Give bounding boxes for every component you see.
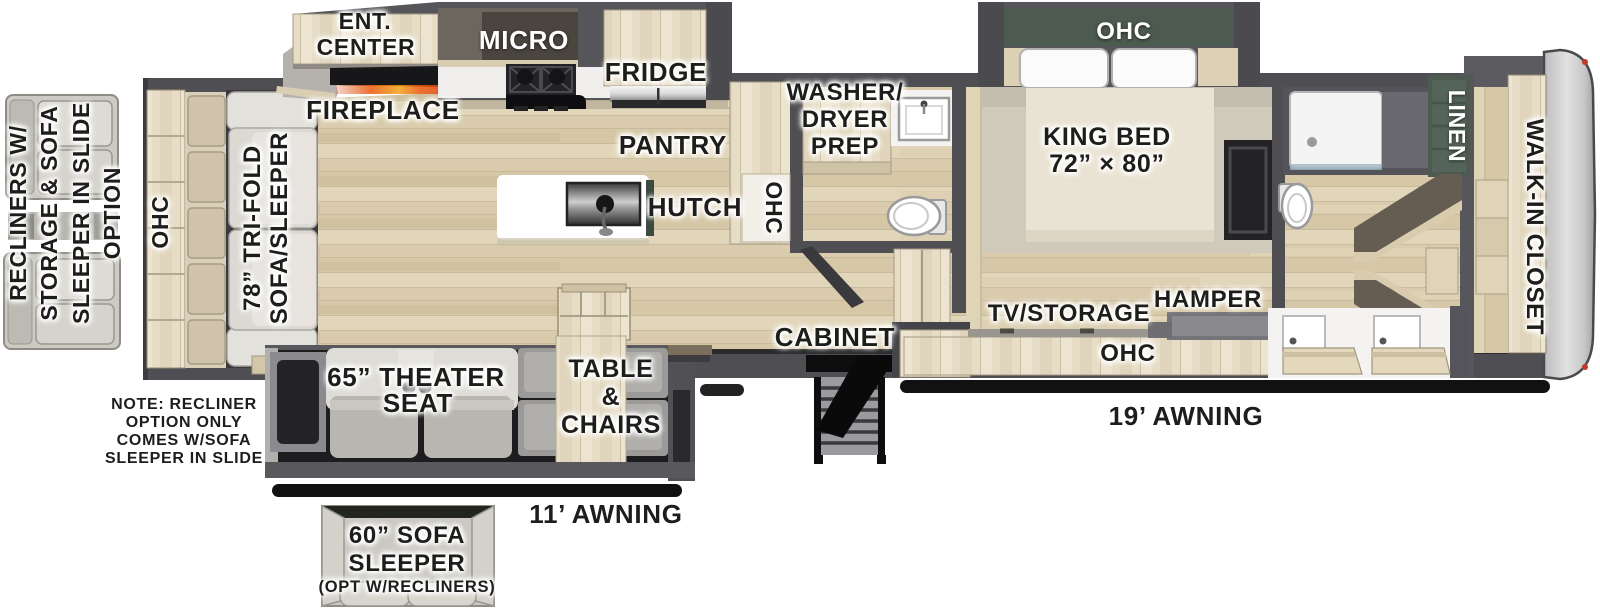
svg-text:11’ AWNING: 11’ AWNING	[529, 499, 682, 529]
svg-text:DRYER: DRYER	[802, 106, 889, 133]
svg-text:OHC: OHC	[1100, 340, 1155, 367]
svg-text:&: &	[602, 383, 621, 411]
svg-text:72” × 80”: 72” × 80”	[1049, 150, 1164, 178]
svg-text:60” SOFA: 60” SOFA	[349, 522, 465, 549]
svg-text:NOTE: RECLINER: NOTE: RECLINER	[111, 396, 257, 413]
svg-text:PREP: PREP	[811, 133, 879, 160]
svg-text:LINEN: LINEN	[1444, 90, 1470, 163]
svg-text:TV/STORAGE: TV/STORAGE	[988, 300, 1151, 327]
svg-text:SLEEPER IN SLIDE: SLEEPER IN SLIDE	[68, 102, 94, 324]
svg-text:KING BED: KING BED	[1043, 123, 1171, 151]
svg-text:OHC: OHC	[147, 195, 173, 248]
svg-text:HAMPER: HAMPER	[1154, 286, 1262, 313]
svg-text:78” TRI-FOLD: 78” TRI-FOLD	[239, 145, 266, 311]
svg-text:OPTION: OPTION	[99, 167, 125, 259]
svg-text:PANTRY: PANTRY	[619, 130, 727, 160]
svg-text:MICRO: MICRO	[479, 25, 569, 55]
svg-text:19’ AWNING: 19’ AWNING	[1109, 401, 1264, 431]
svg-text:WALK-IN CLOSET: WALK-IN CLOSET	[1521, 119, 1548, 335]
svg-text:(OPT W/RECLINERS): (OPT W/RECLINERS)	[319, 578, 496, 596]
svg-text:FIREPLACE: FIREPLACE	[306, 95, 460, 125]
svg-text:SLEEPER: SLEEPER	[349, 550, 466, 577]
svg-text:OHC: OHC	[761, 181, 787, 234]
svg-text:WASHER/: WASHER/	[787, 79, 904, 106]
svg-text:CHAIRS: CHAIRS	[561, 411, 661, 439]
svg-text:TABLE: TABLE	[569, 355, 654, 383]
svg-text:ENT.: ENT.	[339, 8, 392, 34]
svg-text:SOFA/SLEEPER: SOFA/SLEEPER	[266, 132, 293, 324]
svg-text:HUTCH: HUTCH	[648, 192, 743, 222]
svg-text:SEAT: SEAT	[383, 388, 453, 418]
svg-text:SLEEPER IN SLIDE: SLEEPER IN SLIDE	[105, 450, 263, 467]
svg-text:STORAGE & SOFA: STORAGE & SOFA	[36, 105, 62, 320]
svg-text:FRIDGE: FRIDGE	[605, 57, 707, 87]
svg-text:OPTION ONLY: OPTION ONLY	[126, 414, 242, 431]
svg-text:OHC: OHC	[1096, 18, 1151, 45]
svg-text:COMES W/SOFA: COMES W/SOFA	[117, 432, 252, 449]
svg-text:CABINET: CABINET	[775, 322, 895, 352]
svg-text:RECLINERS W/: RECLINERS W/	[5, 125, 31, 301]
svg-text:CENTER: CENTER	[317, 34, 416, 60]
